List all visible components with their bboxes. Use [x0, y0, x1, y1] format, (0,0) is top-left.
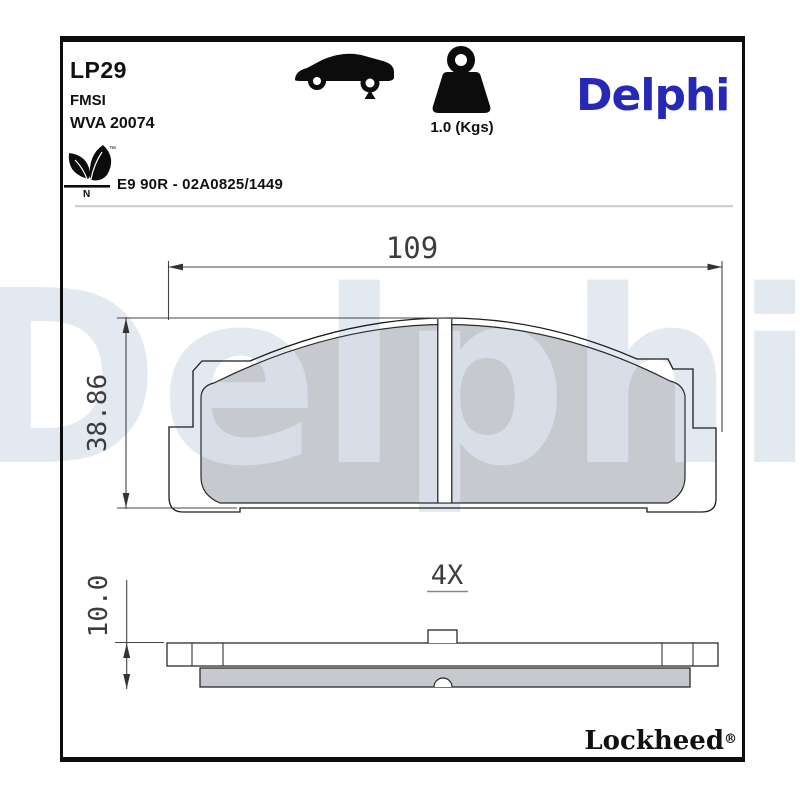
wva-number: WVA 20074 — [70, 115, 154, 133]
eco-letter: N — [83, 189, 90, 200]
backplate-side — [167, 643, 718, 666]
sub-brand-logo: Lockheed® — [584, 726, 737, 756]
thickness-dimension: 10.0 — [84, 575, 164, 689]
quantity-value: 4X — [431, 560, 464, 591]
brand-logo: Delphi — [576, 70, 729, 121]
thickness-dimension-value: 10.0 — [84, 575, 114, 638]
height-dimension-value: 38.86 — [83, 374, 113, 452]
header-separator — [75, 205, 733, 208]
quantity-label: 4X — [427, 560, 468, 592]
approval-number: E9 90R - 02A0825/1449 — [117, 176, 283, 193]
kettlebell-weight-icon — [427, 46, 497, 118]
width-dimension-value: 109 — [386, 231, 438, 265]
watermark-text: Delphi — [0, 239, 800, 519]
weight-value: 1.0 (Kgs) — [412, 119, 512, 136]
trademark-symbol: ™ — [109, 146, 116, 153]
fmsi-label: FMSI — [70, 92, 106, 109]
part-number: LP29 — [70, 57, 127, 84]
eco-leaf-icon: ™ N — [63, 142, 119, 200]
center-slot — [438, 319, 452, 503]
sub-brand-text: Lockheed — [584, 726, 724, 756]
locating-tab — [428, 630, 457, 643]
car-side-icon — [294, 50, 396, 100]
datasheet-page: Delphi 109 38.86 — [0, 0, 800, 800]
registered-mark: ® — [724, 732, 737, 747]
